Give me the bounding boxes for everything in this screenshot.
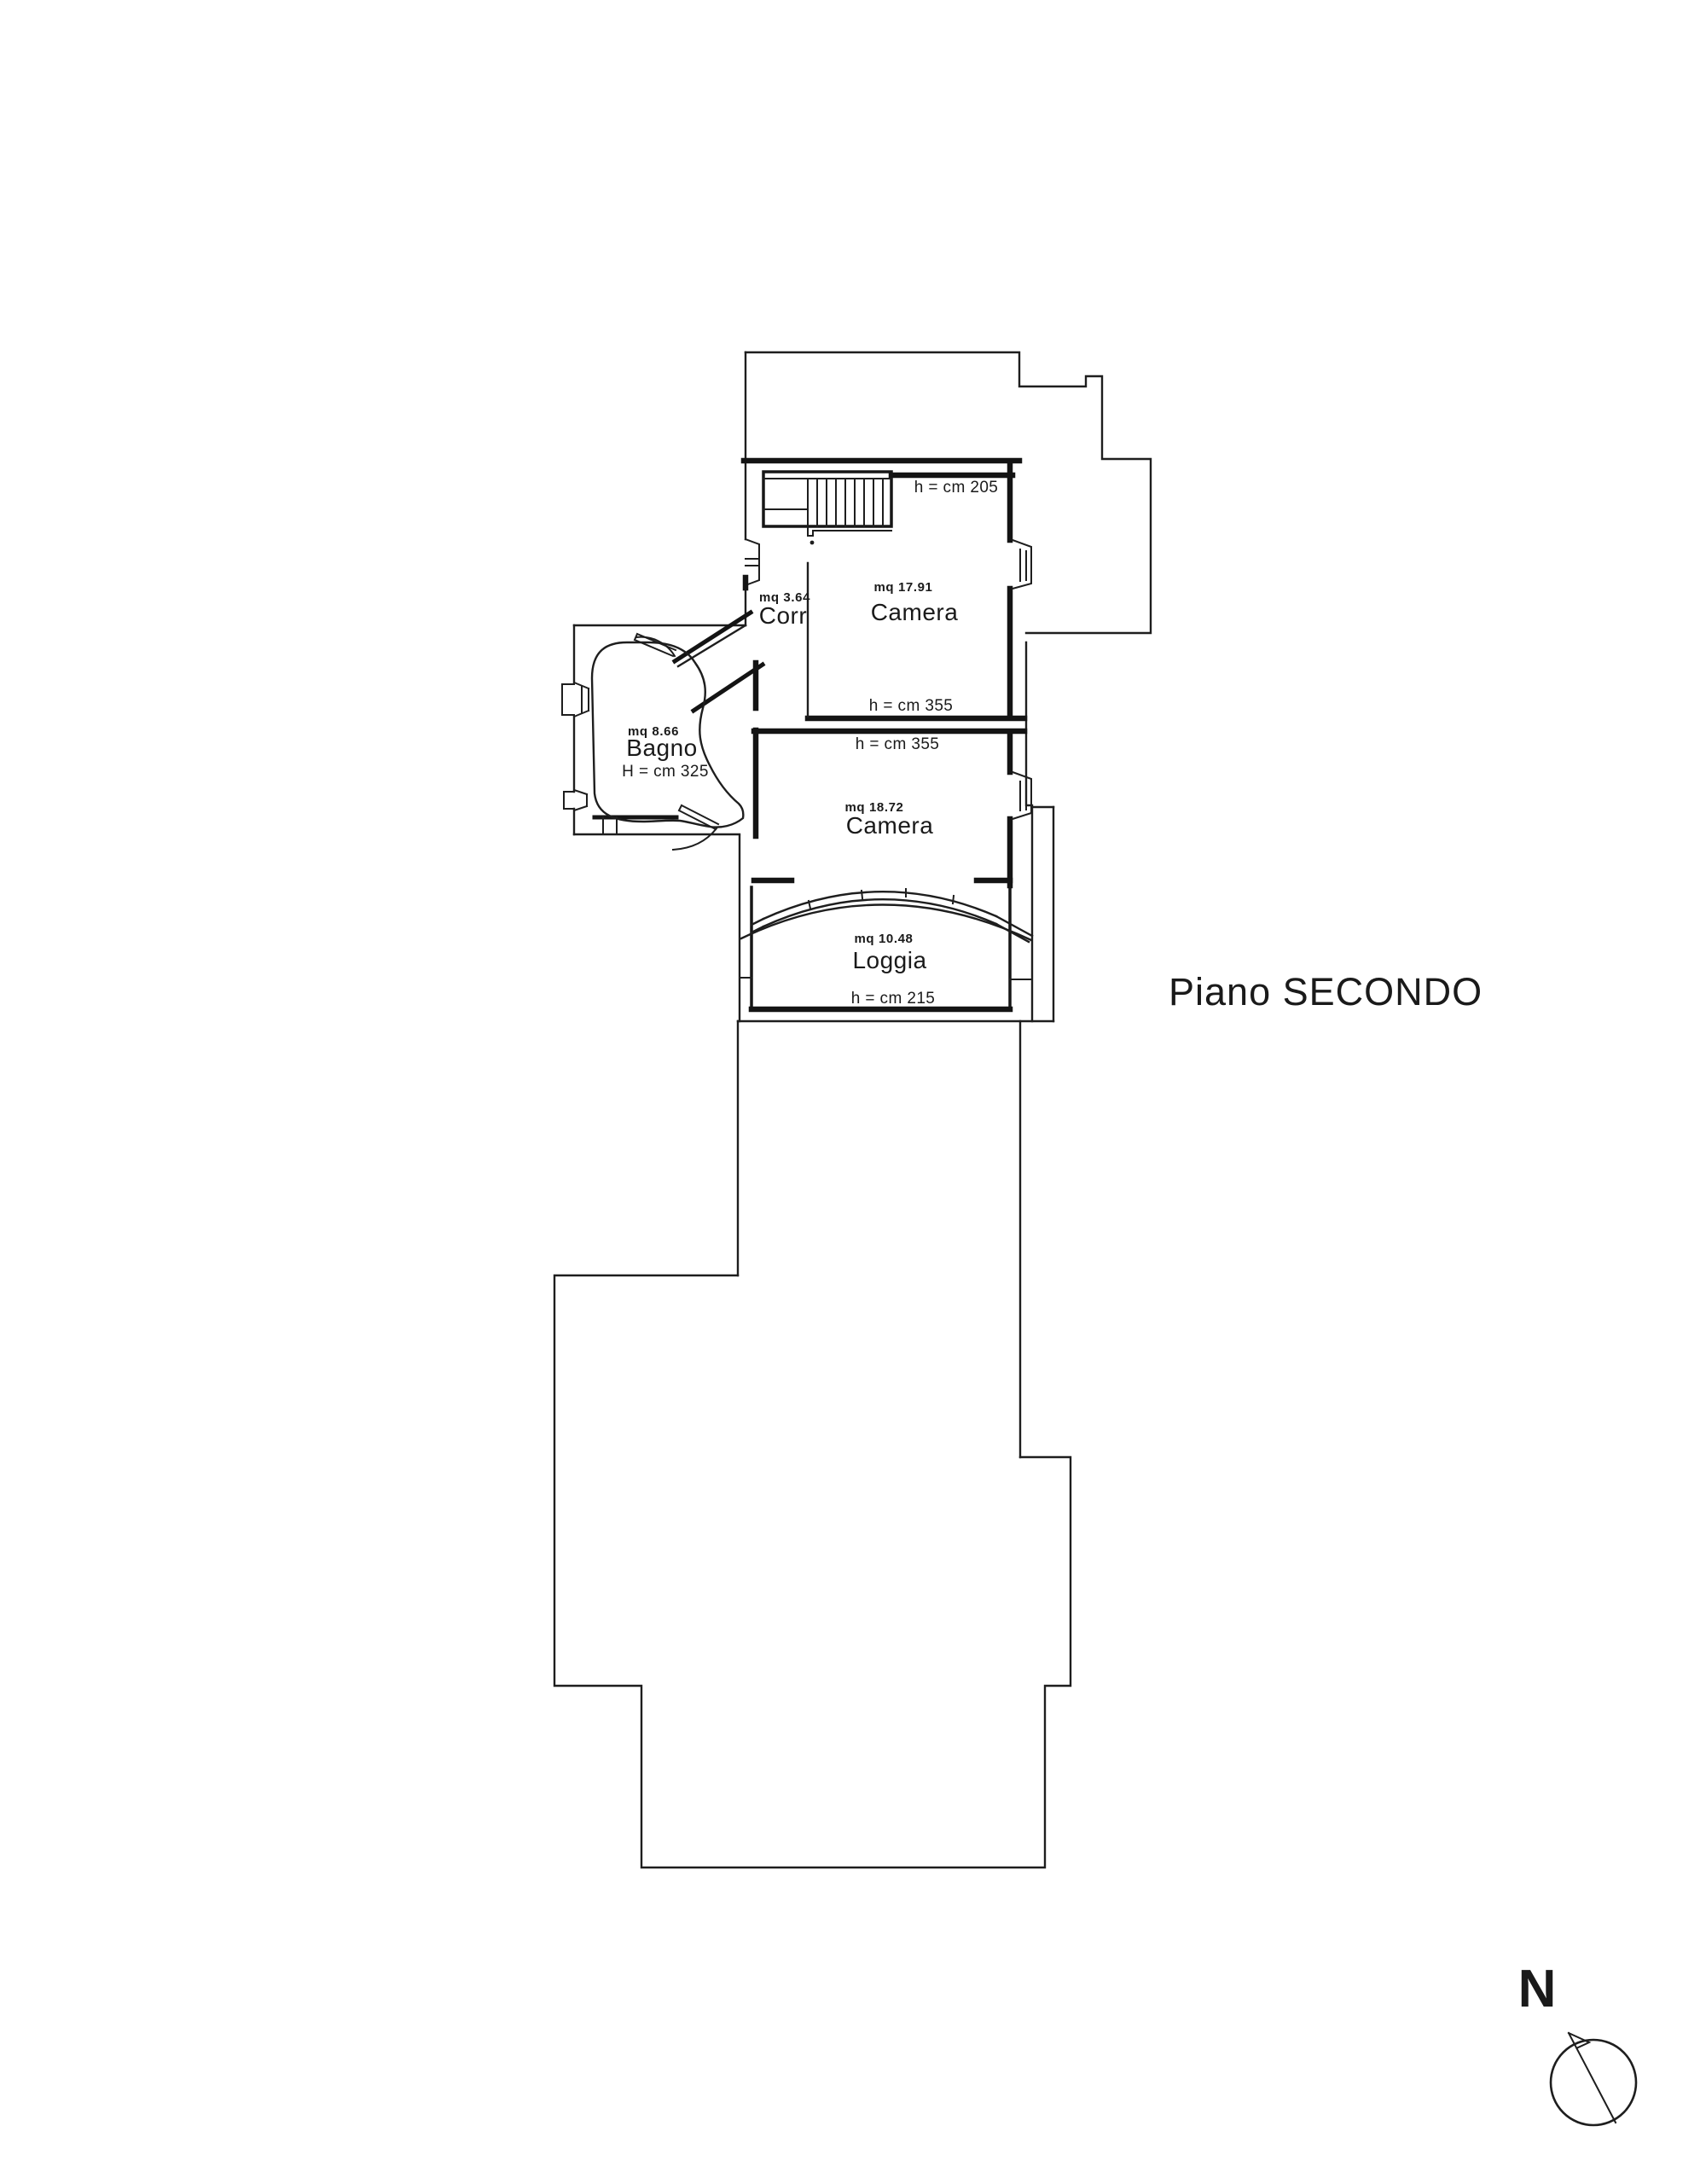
camera-1-window: [1013, 540, 1031, 589]
north-letter: N: [1518, 1960, 1557, 2018]
corridoio-name-label: Corr: [759, 602, 807, 629]
camera-2-name-label: Camera: [846, 812, 934, 839]
camera-1-height-bottom-label: h = cm 355: [869, 697, 954, 715]
camera-2-height-top-label: h = cm 355: [856, 735, 940, 753]
camera-1-name-label: Camera: [871, 599, 959, 625]
bagno-windows: [562, 682, 589, 810]
north-compass: N: [1518, 1960, 1636, 2125]
camera-1-height-top-label: h = cm 205: [914, 479, 999, 497]
bagno-door-bottom: [673, 805, 718, 850]
outer-outline: [554, 352, 1151, 1867]
room-labels: h = cm 205 mq 17.91 Camera h = cm 355 h …: [622, 479, 998, 1008]
bagno-name-label: Bagno: [626, 735, 697, 761]
loggia-name-label: Loggia: [852, 947, 926, 973]
floor-plan-drawing: h = cm 205 mq 17.91 Camera h = cm 355 h …: [0, 0, 1706, 2184]
bagno-height-label: H = cm 325: [622, 763, 709, 781]
compass-circle: [1551, 2040, 1636, 2125]
camera-2-window: [1013, 772, 1031, 819]
floor-plan-page: h = cm 205 mq 17.91 Camera h = cm 355 h …: [0, 0, 1706, 2184]
staircase: [763, 472, 891, 536]
loggia-height-label: h = cm 215: [851, 990, 936, 1008]
floor-title: Piano SECONDO: [1169, 970, 1483, 1014]
loggia-area-label: mq 10.48: [854, 932, 913, 946]
compass-needle: [1569, 2033, 1616, 2123]
camera-1-area-label: mq 17.91: [873, 580, 932, 595]
